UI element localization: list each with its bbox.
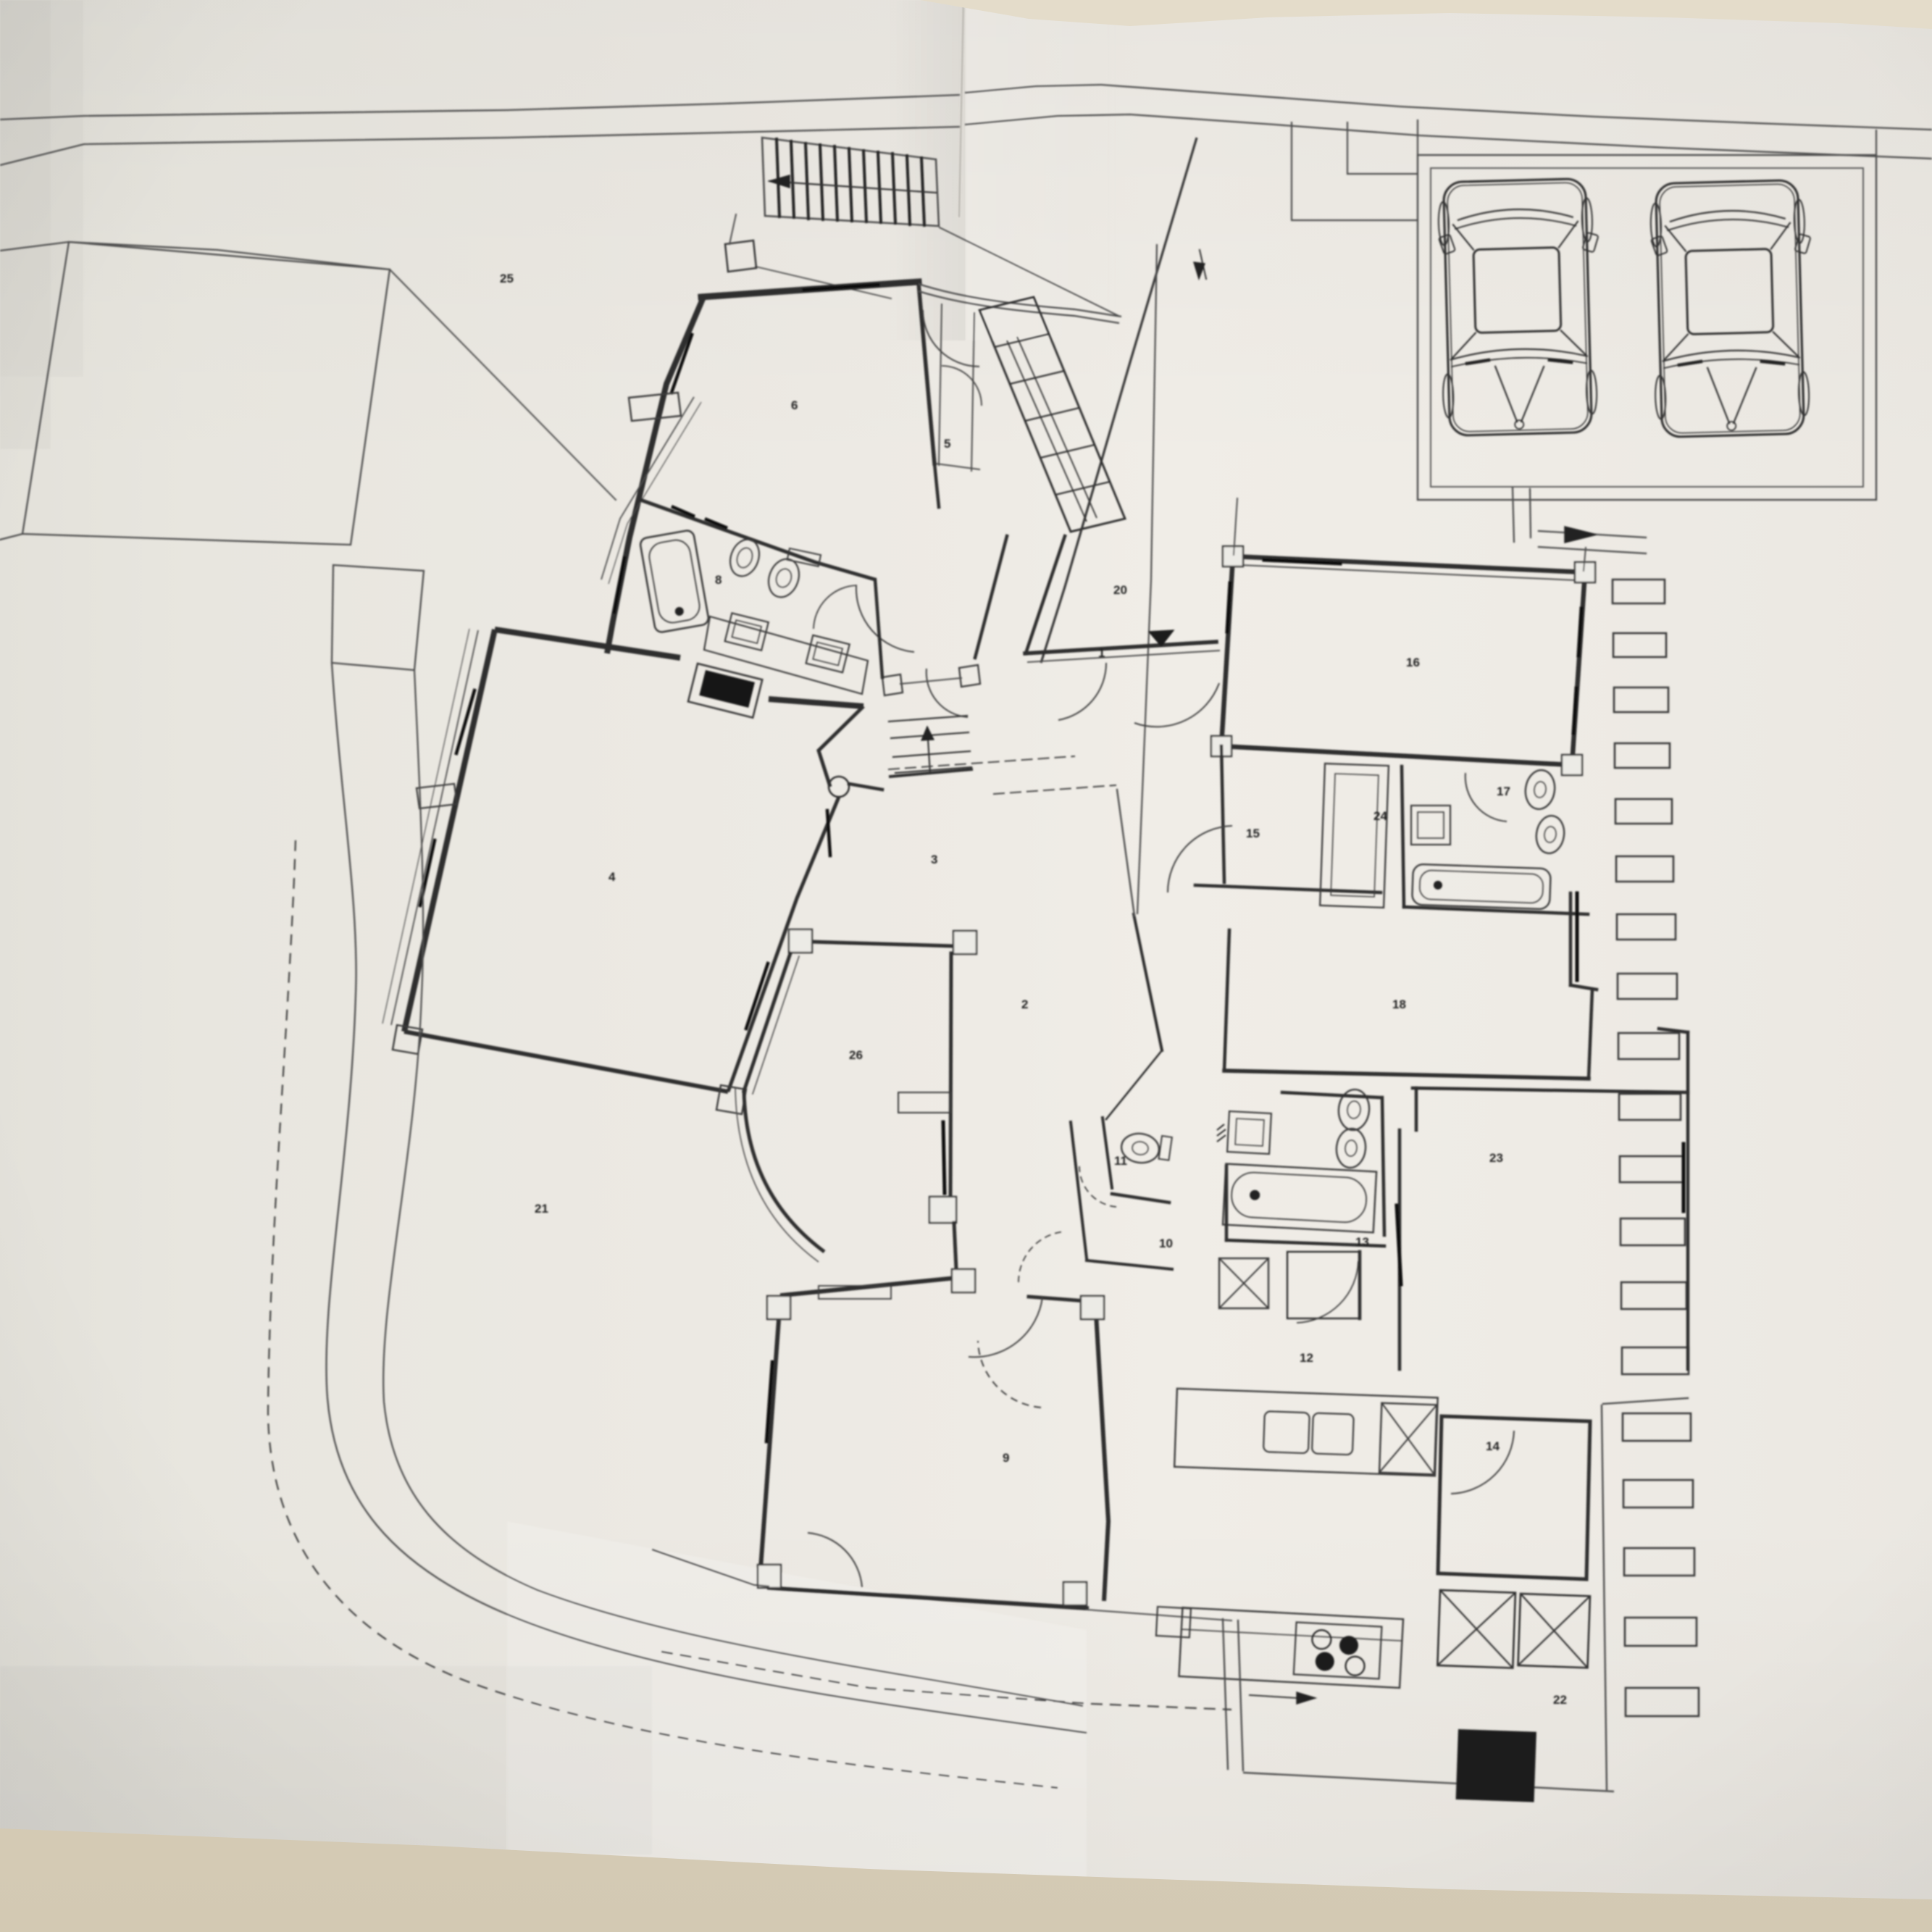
- svg-text:6: 6: [791, 398, 798, 412]
- svg-text:18: 18: [1392, 998, 1406, 1011]
- svg-text:15: 15: [1246, 827, 1260, 840]
- svg-text:24: 24: [1373, 809, 1387, 823]
- svg-text:20: 20: [1113, 583, 1127, 597]
- svg-text:14: 14: [1486, 1439, 1500, 1453]
- svg-text:16: 16: [1406, 656, 1420, 669]
- svg-text:9: 9: [1003, 1451, 1009, 1465]
- svg-text:1: 1: [1098, 646, 1105, 660]
- svg-text:3: 3: [931, 853, 937, 866]
- svg-text:26: 26: [849, 1048, 863, 1062]
- svg-text:25: 25: [500, 272, 514, 285]
- svg-text:10: 10: [1159, 1237, 1173, 1250]
- svg-text:17: 17: [1497, 785, 1510, 798]
- svg-text:22: 22: [1553, 1693, 1567, 1707]
- svg-text:11: 11: [1114, 1154, 1127, 1168]
- svg-text:2: 2: [1021, 998, 1028, 1011]
- svg-text:12: 12: [1300, 1351, 1313, 1365]
- svg-text:21: 21: [535, 1202, 548, 1216]
- svg-text:4: 4: [609, 870, 616, 884]
- svg-text:13: 13: [1355, 1235, 1369, 1249]
- svg-text:23: 23: [1489, 1151, 1503, 1165]
- svg-text:8: 8: [715, 573, 722, 587]
- svg-text:5: 5: [944, 437, 950, 451]
